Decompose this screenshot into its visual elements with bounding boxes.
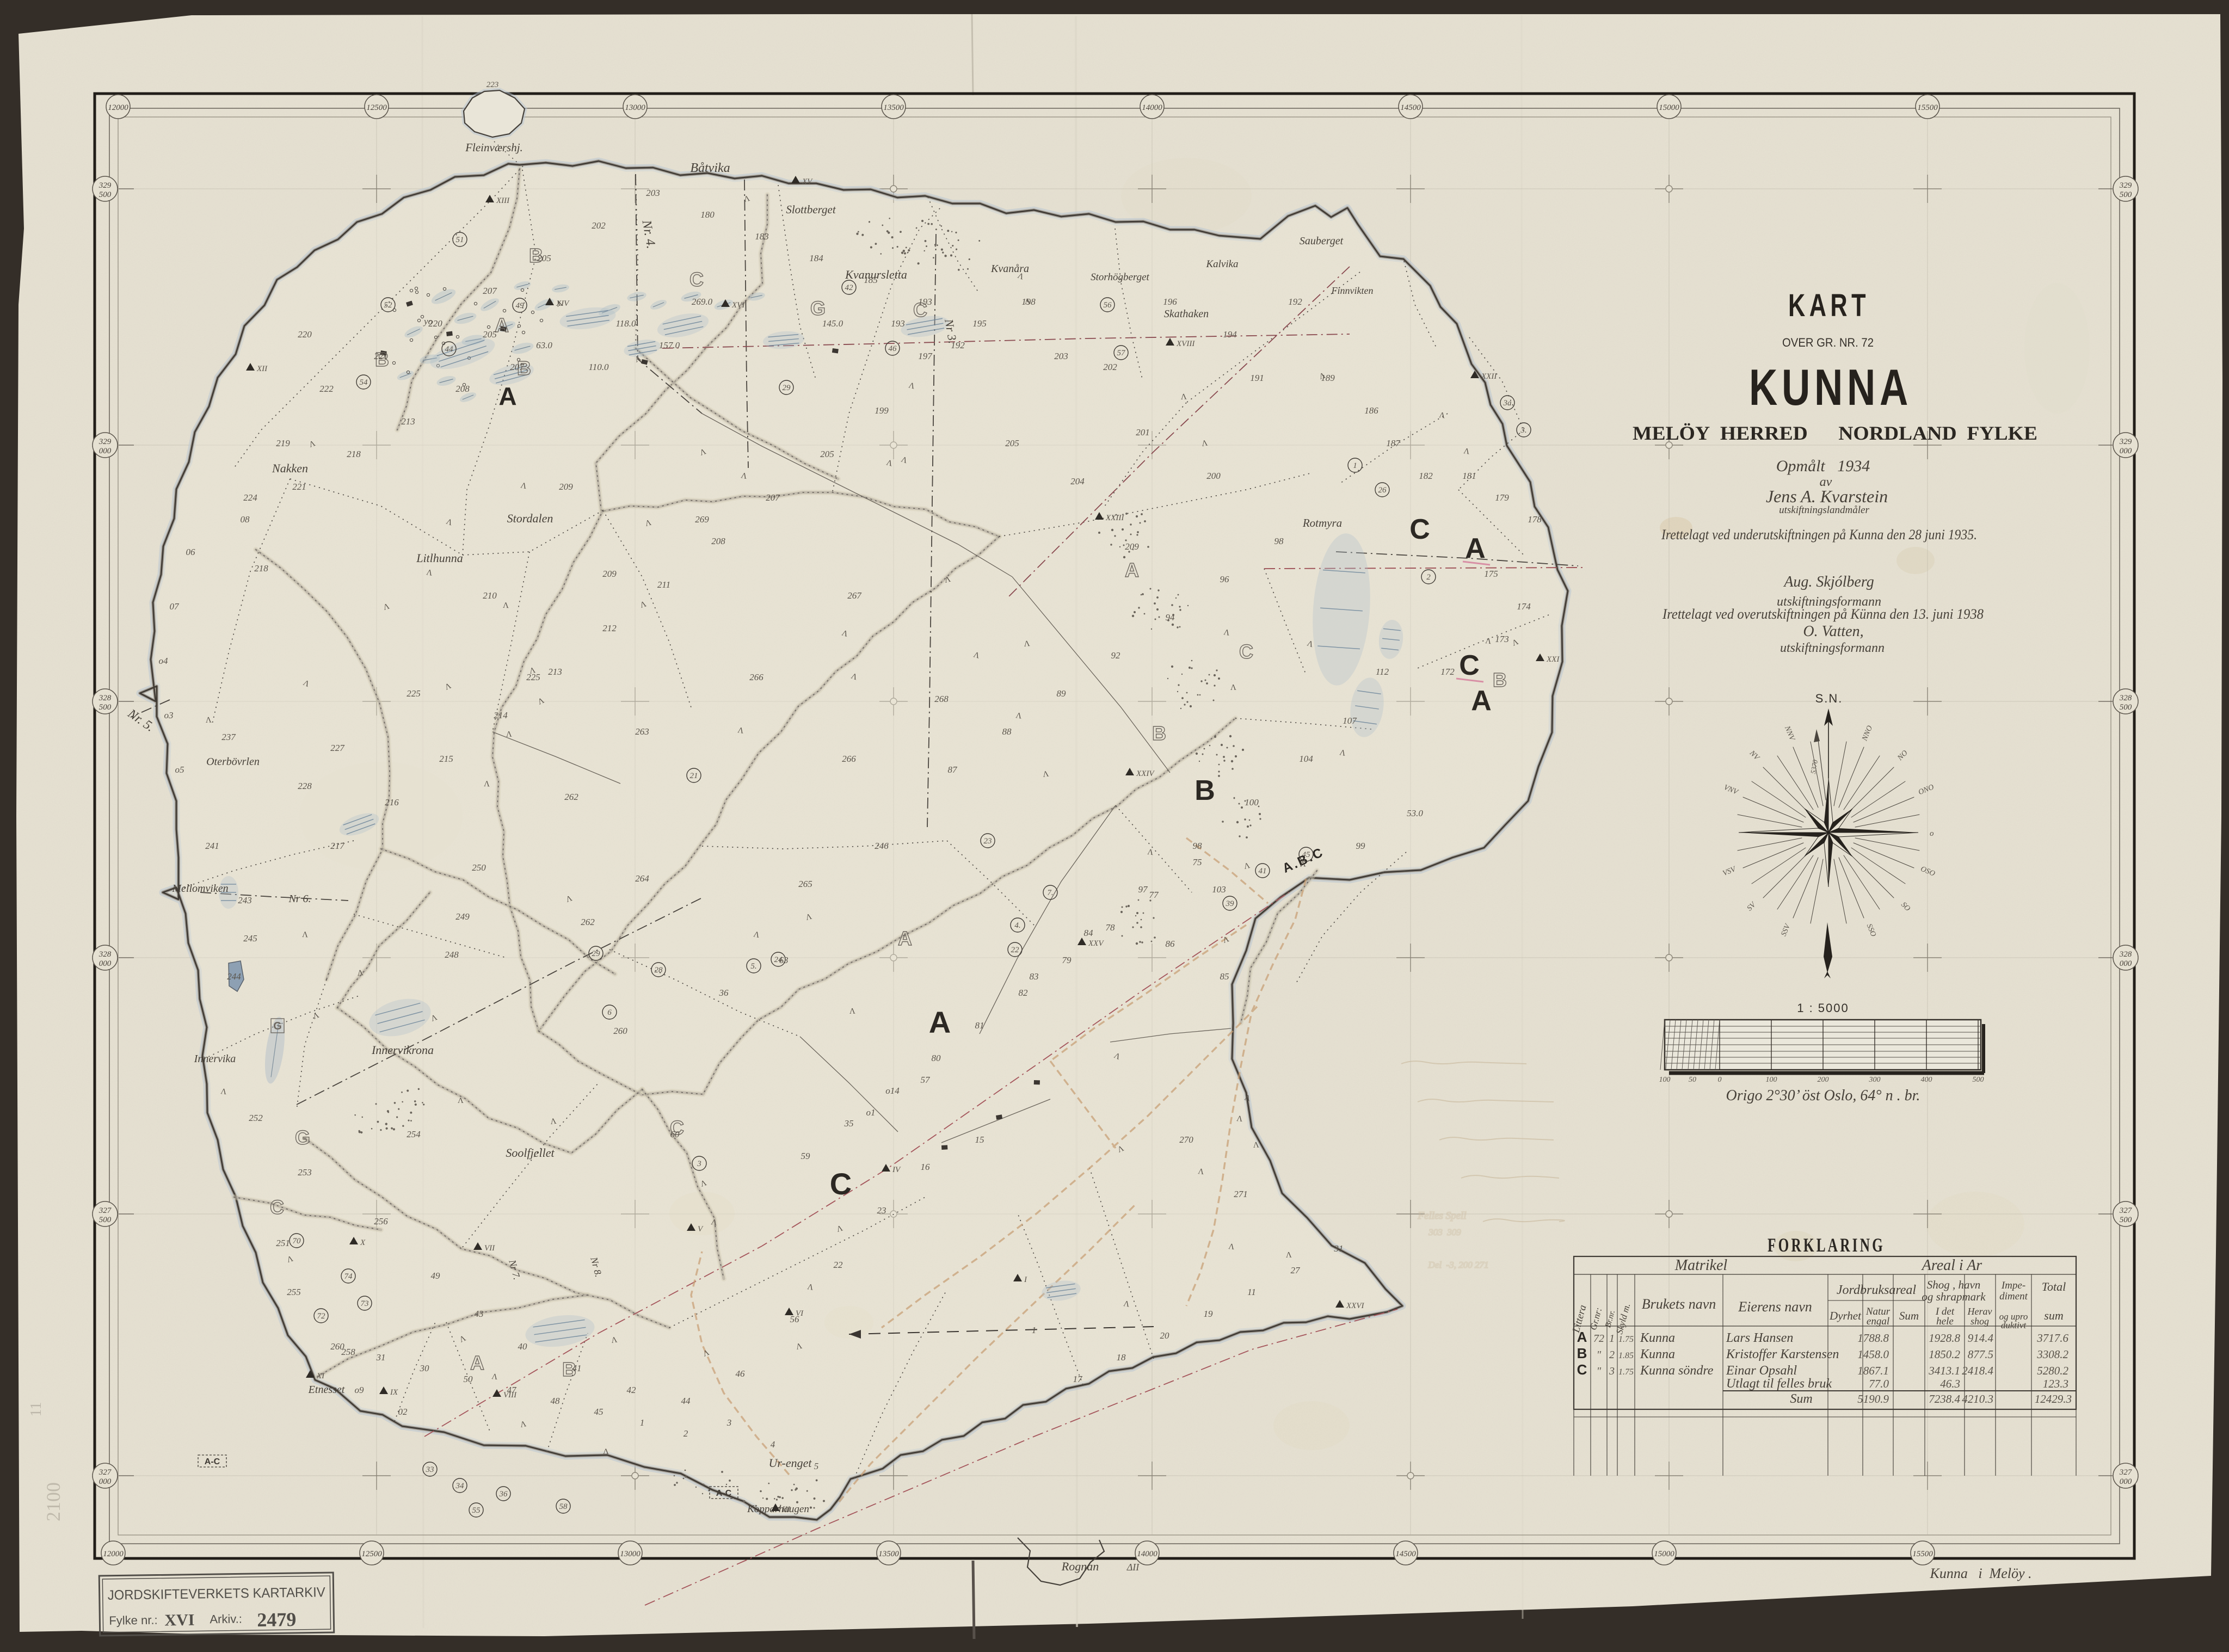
svg-text:1788.8: 1788.8 (1857, 1332, 1889, 1345)
svg-text:57: 57 (921, 1075, 931, 1085)
svg-text:328: 328 (98, 694, 112, 702)
svg-text:44: 44 (445, 345, 454, 354)
svg-text:43: 43 (475, 1309, 484, 1319)
svg-text:2100: 2100 (42, 1482, 64, 1521)
svg-text:500: 500 (99, 703, 112, 712)
svg-text:249: 249 (455, 911, 470, 922)
svg-text:92: 92 (1111, 650, 1121, 661)
svg-text:Jordbruksareal: Jordbruksareal (1837, 1283, 1917, 1297)
svg-text:207: 207 (510, 362, 525, 372)
svg-text:123.3: 123.3 (2043, 1377, 2068, 1390)
svg-text:Slottberget: Slottberget (786, 203, 836, 216)
svg-text:Lars Hansen: Lars Hansen (1726, 1331, 1793, 1345)
svg-text:11: 11 (1247, 1287, 1256, 1297)
svg-text:Herav: Herav (1967, 1306, 1992, 1317)
svg-text:Kunna i Melöy .: Kunna i Melöy . (1929, 1565, 2031, 1581)
svg-text:209: 209 (1125, 541, 1139, 552)
svg-text:220: 220 (298, 329, 312, 340)
svg-text:877.5: 877.5 (1968, 1348, 1993, 1361)
svg-text:JORDSKIFTEVERKETS KARTARKIV: JORDSKIFTEVERKETS KARTARKIV (108, 1585, 326, 1603)
svg-text:228: 228 (298, 781, 312, 791)
svg-text:OVER GR. NR. 72: OVER GR. NR. 72 (1782, 336, 1874, 349)
svg-text:7.: 7. (1047, 889, 1053, 897)
svg-text:57: 57 (1117, 349, 1126, 357)
svg-text:112: 112 (1376, 667, 1389, 677)
svg-text:2: 2 (1426, 573, 1431, 582)
svg-text:21: 21 (690, 772, 698, 780)
svg-text:1850.2: 1850.2 (1929, 1348, 1960, 1361)
svg-text:269: 269 (695, 514, 709, 525)
svg-text:15500: 15500 (1912, 1550, 1933, 1558)
svg-text:213: 213 (548, 667, 562, 677)
svg-text:200: 200 (1206, 471, 1221, 481)
svg-text:15000: 15000 (1654, 1550, 1674, 1558)
svg-text:Λ: Λ (506, 730, 513, 739)
svg-text:50: 50 (1689, 1076, 1696, 1084)
svg-text:35: 35 (844, 1118, 854, 1129)
svg-text:000: 000 (2120, 1477, 2132, 1486)
svg-text:63: 63 (779, 955, 789, 965)
svg-text:12500: 12500 (366, 103, 387, 112)
svg-text:20: 20 (1160, 1330, 1170, 1341)
svg-text:300: 300 (1869, 1076, 1881, 1084)
svg-text:Λ: Λ (302, 930, 309, 939)
svg-text:C: C (1459, 650, 1480, 681)
svg-text:Λ: Λ (1300, 860, 1306, 869)
svg-text:40: 40 (518, 1341, 528, 1352)
svg-text:Λ: Λ (1147, 848, 1154, 857)
svg-text:C: C (689, 268, 704, 291)
svg-text:77: 77 (1149, 890, 1160, 900)
svg-text:34: 34 (455, 1482, 465, 1490)
svg-text:63.0: 63.0 (536, 340, 552, 350)
svg-text:42: 42 (627, 1385, 637, 1395)
svg-text:Rognan: Rognan (1061, 1559, 1099, 1573)
svg-text:Fleinværshj.: Fleinværshj. (465, 141, 523, 154)
svg-text:33: 33 (426, 1465, 434, 1474)
svg-text:266: 266 (749, 672, 763, 682)
svg-text:Λ: Λ (550, 1117, 557, 1126)
svg-text:79: 79 (1062, 955, 1072, 965)
svg-text:500: 500 (99, 190, 112, 199)
svg-text:100: 100 (1766, 1076, 1777, 1084)
svg-text:XVI: XVI (731, 301, 745, 310)
svg-text:Båtvika: Båtvika (690, 161, 730, 175)
svg-text:13500: 13500 (883, 103, 904, 112)
svg-text:84: 84 (1084, 928, 1094, 938)
svg-text:utskiftningsformann: utskiftningsformann (1780, 641, 1885, 655)
svg-text:264: 264 (635, 873, 649, 884)
svg-text:244: 244 (227, 971, 241, 982)
svg-text:Λ: Λ (491, 1372, 498, 1382)
svg-text:13500: 13500 (878, 1550, 899, 1558)
svg-text:Arkiv.:: Arkiv.: (210, 1612, 242, 1626)
svg-text:266: 266 (842, 754, 856, 764)
svg-text:S.N.: S.N. (1815, 692, 1843, 705)
svg-text:60: 60 (670, 1129, 680, 1139)
svg-text:B: B (1493, 669, 1507, 691)
svg-text:193: 193 (918, 297, 932, 307)
svg-text:31: 31 (376, 1352, 386, 1363)
svg-text:Utlagt til felles bruk: Utlagt til felles bruk (1726, 1377, 1832, 1391)
svg-text:13000: 13000 (625, 103, 645, 112)
svg-text:XXV: XXV (1088, 939, 1104, 948)
svg-text:og shrapmark: og shrapmark (1922, 1290, 1986, 1303)
svg-text:XI: XI (316, 1372, 325, 1380)
svg-text:6: 6 (607, 1008, 612, 1017)
svg-text:diment: diment (1999, 1291, 2028, 1302)
svg-text:KART: KART (1788, 288, 1870, 323)
svg-text:245: 245 (243, 933, 257, 944)
svg-text:Λ: Λ (1024, 297, 1031, 306)
svg-text:89: 89 (1057, 688, 1067, 699)
svg-text:56: 56 (790, 1314, 800, 1324)
svg-text:Λ: Λ (1236, 1114, 1243, 1124)
svg-text:3: 3 (1609, 1365, 1615, 1377)
svg-text:49: 49 (431, 1271, 441, 1281)
svg-text:72: 72 (317, 1312, 326, 1321)
svg-text:Λ: Λ (205, 716, 212, 725)
svg-text:41: 41 (572, 1363, 582, 1373)
svg-text:174: 174 (1517, 601, 1531, 612)
svg-text:23: 23 (984, 837, 992, 846)
svg-text:Sauberget: Sauberget (1300, 235, 1344, 247)
svg-text:219: 219 (276, 438, 290, 448)
svg-text:C: C (1577, 1361, 1587, 1378)
svg-text:Λ: Λ (458, 1096, 464, 1105)
svg-text:98: 98 (1193, 841, 1203, 851)
svg-text:269.0: 269.0 (692, 297, 713, 307)
svg-text:Dyrhet: Dyrhet (1829, 1309, 1862, 1322)
svg-text:engal: engal (1867, 1316, 1889, 1327)
svg-text:268: 268 (934, 694, 949, 704)
svg-text:327: 327 (2119, 1206, 2133, 1215)
svg-text:30: 30 (420, 1363, 430, 1373)
svg-text:181: 181 (1462, 471, 1476, 481)
svg-text:000: 000 (99, 959, 112, 968)
svg-text:Kunna: Kunna (1640, 1347, 1675, 1361)
svg-text:1: 1 (1353, 461, 1357, 470)
svg-text:86: 86 (1166, 939, 1175, 949)
svg-text:42: 42 (845, 283, 854, 292)
svg-text:208: 208 (455, 384, 470, 394)
svg-text:328: 328 (98, 950, 112, 959)
svg-text:ΔII: ΔII (1126, 1562, 1140, 1573)
svg-text:12000: 12000 (103, 1550, 124, 1558)
svg-text:329: 329 (2119, 437, 2132, 446)
svg-text:Λ: Λ (1230, 683, 1236, 692)
svg-text:XXVI: XXVI (1346, 1302, 1364, 1310)
svg-text:C: C (830, 1167, 852, 1201)
svg-text:XXIII: XXIII (1105, 514, 1124, 522)
svg-text:2: 2 (684, 1428, 688, 1439)
svg-text:329: 329 (2119, 181, 2132, 190)
svg-text:46.3: 46.3 (1940, 1377, 1960, 1390)
svg-text:50: 50 (464, 1374, 473, 1384)
svg-text:Skathaken: Skathaken (1164, 308, 1209, 320)
svg-text:270: 270 (1179, 1135, 1193, 1145)
svg-text:A: A (898, 927, 912, 950)
svg-text:Λ: Λ (1253, 1141, 1259, 1150)
svg-text:B: B (1152, 722, 1166, 744)
svg-text:Origo 2°30’ öst Oslo, 64°: Origo 2°30’ öst Oslo, 64° n . br. (1726, 1087, 1920, 1104)
svg-text:Etnesset: Etnesset (308, 1384, 345, 1396)
svg-text:02: 02 (398, 1407, 408, 1417)
svg-text:Nr 6.: Nr 6. (288, 893, 311, 905)
svg-text:G: G (273, 1020, 282, 1032)
svg-text:Λ: Λ (849, 1007, 856, 1016)
svg-text:Λ: Λ (1286, 1251, 1292, 1260)
svg-text:207: 207 (483, 286, 497, 296)
svg-text:18: 18 (1117, 1352, 1126, 1363)
svg-text:Λ: Λ (357, 969, 364, 978)
svg-text:39: 39 (1226, 899, 1235, 908)
svg-text:104: 104 (1299, 754, 1313, 764)
svg-text:110.0: 110.0 (589, 362, 609, 372)
svg-text:Λ: Λ (1180, 392, 1187, 402)
svg-text:199: 199 (875, 405, 889, 416)
svg-text:B: B (1194, 775, 1215, 806)
svg-text:C: C (1239, 640, 1253, 663)
svg-text:80: 80 (932, 1053, 941, 1063)
svg-text:hele: hele (1936, 1316, 1954, 1327)
svg-text:103: 103 (1212, 884, 1226, 895)
svg-text:96: 96 (1220, 574, 1230, 584)
svg-text:500: 500 (99, 1216, 112, 1224)
svg-text:201: 201 (1136, 427, 1150, 437)
svg-text:o3: o3 (164, 710, 174, 720)
svg-text:179: 179 (1495, 492, 1509, 503)
svg-text:263: 263 (635, 726, 649, 737)
svg-text:5: 5 (814, 1461, 819, 1471)
svg-text:328: 328 (2119, 694, 2132, 702)
svg-text:Innervikrona: Innervikrona (371, 1043, 434, 1057)
svg-text:KUNNA: KUNNA (1749, 359, 1912, 416)
svg-text:Λ: Λ (1024, 639, 1030, 649)
svg-text:Kunna söndre: Kunna söndre (1640, 1364, 1714, 1378)
svg-text:205: 205 (537, 253, 551, 263)
svg-text:251: 251 (276, 1238, 290, 1248)
svg-text:214: 214 (494, 710, 508, 720)
svg-text:Oterbövrlen: Oterbövrlen (206, 756, 260, 768)
svg-text:208: 208 (711, 536, 725, 546)
svg-text:329: 329 (98, 437, 112, 446)
svg-text:197: 197 (918, 351, 933, 361)
svg-text:100: 100 (1245, 797, 1259, 807)
svg-text:218: 218 (254, 563, 268, 574)
svg-text:000: 000 (2120, 959, 2132, 968)
svg-text:Finnvikten: Finnvikten (1331, 285, 1374, 296)
svg-text:Shog , havn: Shog , havn (1927, 1278, 1981, 1291)
svg-text:215: 215 (439, 754, 453, 764)
svg-text:06: 06 (186, 547, 196, 557)
svg-text:A: A (1471, 685, 1492, 717)
svg-text:45: 45 (594, 1407, 604, 1417)
svg-text:12429.3: 12429.3 (2035, 1392, 2072, 1406)
svg-text:1.75: 1.75 (1618, 1367, 1634, 1377)
svg-text:3.: 3. (1520, 426, 1526, 435)
svg-text:222: 222 (319, 384, 334, 394)
svg-text:Del -3, 200 271: Del -3, 200 271 (1428, 1260, 1489, 1270)
svg-text:329: 329 (98, 181, 112, 190)
svg-text:248: 248 (445, 950, 459, 960)
svg-text:74: 74 (344, 1272, 353, 1281)
svg-text:12500: 12500 (361, 1550, 382, 1558)
svg-text:180: 180 (700, 209, 715, 220)
svg-text:192: 192 (1288, 297, 1302, 307)
svg-text:Nakken: Nakken (272, 461, 308, 475)
svg-text:XXIV: XXIV (1136, 769, 1155, 778)
svg-text:223: 223 (487, 81, 499, 89)
svg-text:172: 172 (1440, 667, 1455, 677)
svg-text:254: 254 (407, 1129, 421, 1139)
svg-text:Stordalen: Stordalen (507, 511, 553, 525)
svg-text:45: 45 (1302, 850, 1311, 859)
svg-text:100: 100 (1659, 1076, 1671, 1084)
svg-text:250: 250 (472, 862, 486, 873)
svg-text:": " (1597, 1365, 1602, 1377)
svg-text:187: 187 (1386, 438, 1401, 448)
svg-text:49: 49 (516, 301, 525, 310)
svg-text:186: 186 (1364, 405, 1378, 416)
svg-text:3308.2: 3308.2 (2036, 1348, 2068, 1361)
svg-text:237: 237 (221, 732, 236, 742)
svg-text:77.0: 77.0 (1869, 1377, 1889, 1390)
svg-text:225: 225 (407, 688, 421, 699)
svg-text:VII: VII (484, 1244, 495, 1253)
svg-text:75: 75 (1193, 857, 1202, 867)
svg-text:Kristoffer Karstensen: Kristoffer Karstensen (1726, 1347, 1839, 1361)
svg-text:5.: 5. (750, 962, 756, 971)
svg-text:157.0: 157.0 (659, 340, 680, 350)
svg-text:A-C: A-C (205, 1457, 220, 1466)
svg-text:173: 173 (1495, 634, 1509, 644)
svg-text:5190.9: 5190.9 (1857, 1392, 1889, 1406)
svg-text:A: A (929, 1005, 951, 1039)
svg-text:000: 000 (2120, 447, 2132, 455)
svg-text:224: 224 (243, 492, 257, 503)
svg-text:Areal i Ar: Areal i Ar (1921, 1257, 1982, 1274)
svg-text:O. Vatten,: O. Vatten, (1803, 623, 1863, 640)
svg-text:Storhögberget: Storhögberget (1091, 272, 1149, 283)
svg-text:11: 11 (28, 1402, 45, 1417)
svg-text:178: 178 (1528, 514, 1542, 525)
svg-text:Λ: Λ (503, 601, 509, 610)
svg-text:Eierens navn: Eierens navn (1738, 1299, 1812, 1315)
svg-text:72: 72 (1593, 1333, 1604, 1345)
svg-text:XXI: XXI (1546, 655, 1560, 664)
svg-text:2418.4: 2418.4 (1962, 1364, 1993, 1377)
svg-text:Sum: Sum (1899, 1309, 1919, 1322)
svg-text:Λ: Λ (484, 780, 490, 788)
svg-text:A: A (1577, 1329, 1587, 1345)
svg-text:14000: 14000 (1142, 103, 1162, 112)
svg-text:3413.1: 3413.1 (1928, 1364, 1960, 1377)
svg-text:3: 3 (726, 1417, 732, 1428)
svg-text:256: 256 (374, 1216, 388, 1226)
svg-text:260: 260 (330, 1341, 344, 1352)
svg-text:265: 265 (798, 879, 812, 889)
svg-text:46: 46 (736, 1369, 746, 1379)
svg-text:C: C (270, 1196, 284, 1218)
svg-text:Λ: Λ (1485, 637, 1492, 646)
svg-text:914.4: 914.4 (1968, 1332, 1994, 1345)
svg-text:27: 27 (1291, 1265, 1301, 1275)
svg-text:III: III (781, 1505, 791, 1514)
svg-text:59: 59 (801, 1151, 811, 1161)
svg-text:shog: shog (1971, 1316, 1989, 1327)
svg-text:192: 192 (951, 340, 965, 350)
svg-text:185: 185 (864, 275, 878, 285)
svg-text:55: 55 (472, 1506, 481, 1515)
svg-text:IV: IV (892, 1166, 901, 1174)
svg-text:83: 83 (1030, 971, 1039, 982)
svg-text:A: A (1465, 533, 1486, 564)
svg-text:duktivt: duktivt (2001, 1320, 2027, 1330)
svg-text:o: o (1930, 829, 1934, 838)
svg-text:C: C (1409, 514, 1430, 545)
svg-text:o4: o4 (159, 656, 169, 666)
svg-text:262: 262 (581, 917, 595, 927)
svg-text:Λ: Λ (1198, 1167, 1205, 1176)
svg-text:1: 1 (1609, 1333, 1615, 1345)
svg-text:Impe-: Impe- (2001, 1280, 2025, 1291)
svg-text:23: 23 (877, 1205, 886, 1216)
svg-text:3: 3 (697, 1160, 701, 1168)
svg-text:209: 209 (559, 482, 573, 492)
svg-text:227: 227 (330, 743, 345, 753)
svg-text:Fylke nr.:: Fylke nr.: (109, 1613, 158, 1628)
svg-text:85: 85 (1220, 971, 1229, 982)
svg-text:G: G (810, 297, 826, 319)
svg-text:53.0: 53.0 (1407, 808, 1423, 818)
svg-text:36: 36 (499, 1490, 508, 1499)
svg-text:41: 41 (1259, 867, 1267, 876)
svg-text:29: 29 (783, 384, 791, 392)
svg-text:184: 184 (809, 253, 823, 263)
svg-text:1.75: 1.75 (1618, 1335, 1634, 1344)
svg-text:203: 203 (646, 188, 660, 198)
svg-text:Aug. Skjólberg: Aug. Skjólberg (1783, 574, 1874, 590)
svg-text:145.0: 145.0 (822, 318, 843, 329)
svg-text:212: 212 (602, 623, 617, 633)
svg-text:1: 1 (640, 1417, 645, 1428)
svg-text:08: 08 (241, 514, 250, 525)
svg-text:FORKLARING: FORKLARING (1768, 1234, 1885, 1256)
svg-text:94: 94 (1166, 612, 1175, 622)
svg-text:000: 000 (99, 447, 112, 455)
svg-text:XII: XII (256, 365, 268, 373)
svg-text:202: 202 (592, 220, 606, 231)
svg-text:78: 78 (1106, 922, 1116, 933)
svg-text:4: 4 (771, 1439, 775, 1450)
svg-text:Mellomviken: Mellomviken (171, 883, 228, 895)
svg-text:196: 196 (1163, 297, 1177, 307)
svg-text:Λ: Λ (1228, 1242, 1235, 1252)
svg-text:193: 193 (891, 318, 905, 329)
svg-text:Felles Spell: Felles Spell (1417, 1210, 1466, 1222)
svg-text:271: 271 (1234, 1189, 1248, 1199)
svg-text:213: 213 (401, 416, 415, 427)
svg-text:Kalvika: Kalvika (1205, 258, 1238, 270)
svg-text:A: A (1125, 559, 1139, 581)
svg-text:327: 327 (98, 1206, 112, 1215)
svg-text:A: A (470, 1352, 484, 1374)
svg-text:Einar Opsahl: Einar Opsahl (1726, 1364, 1797, 1378)
svg-text:14500: 14500 (1400, 103, 1421, 112)
svg-text:241: 241 (205, 841, 219, 851)
svg-text:o9: o9 (355, 1385, 365, 1395)
